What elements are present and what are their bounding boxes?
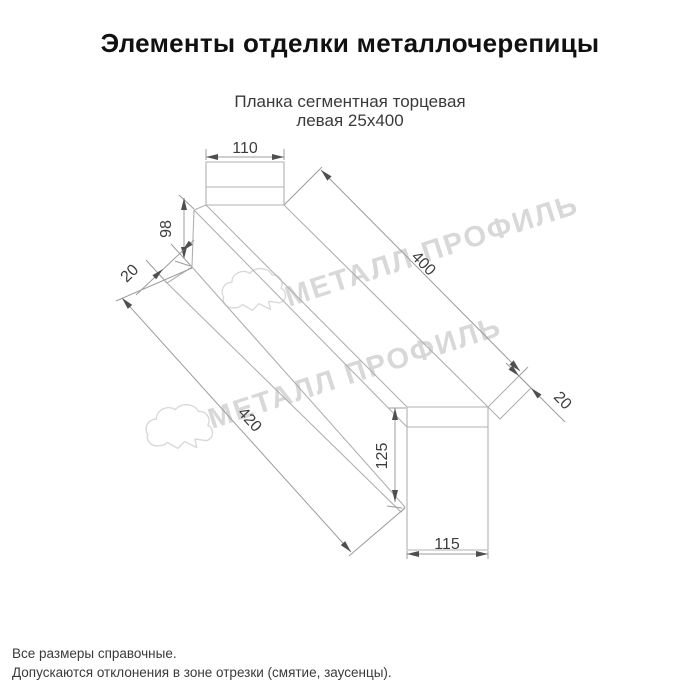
dimension-left-hem: 20 xyxy=(118,240,194,295)
watermark-lower-left: МЕТАЛЛ ПРОФИЛЬ xyxy=(146,310,506,448)
technical-drawing: МЕТАЛЛ ПРОФИЛЬ МЕТАЛЛ ПРОФИЛЬ 110 98 xyxy=(0,0,700,700)
dim-20-right-label: 20 xyxy=(550,389,575,414)
watermark-center: МЕТАЛЛ ПРОФИЛЬ xyxy=(222,188,583,313)
dimension-left-end-height: 98 xyxy=(158,195,194,266)
footnotes: Все размеры справочные. Допускаются откл… xyxy=(12,644,392,682)
right-end-section xyxy=(407,407,488,550)
watermark-text: МЕТАЛЛ ПРОФИЛЬ xyxy=(281,188,582,313)
dim-98-label: 98 xyxy=(158,220,175,238)
right-hem-fold xyxy=(488,376,531,419)
metall-profil-logo-icon xyxy=(146,405,212,449)
dim-115-label: 115 xyxy=(434,536,460,553)
footnote-reference-dimensions: Все размеры справочные. xyxy=(12,644,392,663)
dimension-top-flange-width: 110 xyxy=(206,140,284,160)
dim-20-left-label: 20 xyxy=(118,261,143,286)
dimension-right-end-height: 125 xyxy=(374,408,406,508)
left-end-section xyxy=(206,162,284,205)
left-end-face xyxy=(192,205,206,267)
footnote-cut-zone: Допускаются отклонения в зоне отрезки (с… xyxy=(12,663,392,682)
dim-125-label: 125 xyxy=(374,443,391,470)
dimension-bottom-flange-width: 115 xyxy=(407,536,488,559)
dim-110-label: 110 xyxy=(232,140,258,157)
dimension-right-hem: 20 xyxy=(506,363,575,422)
